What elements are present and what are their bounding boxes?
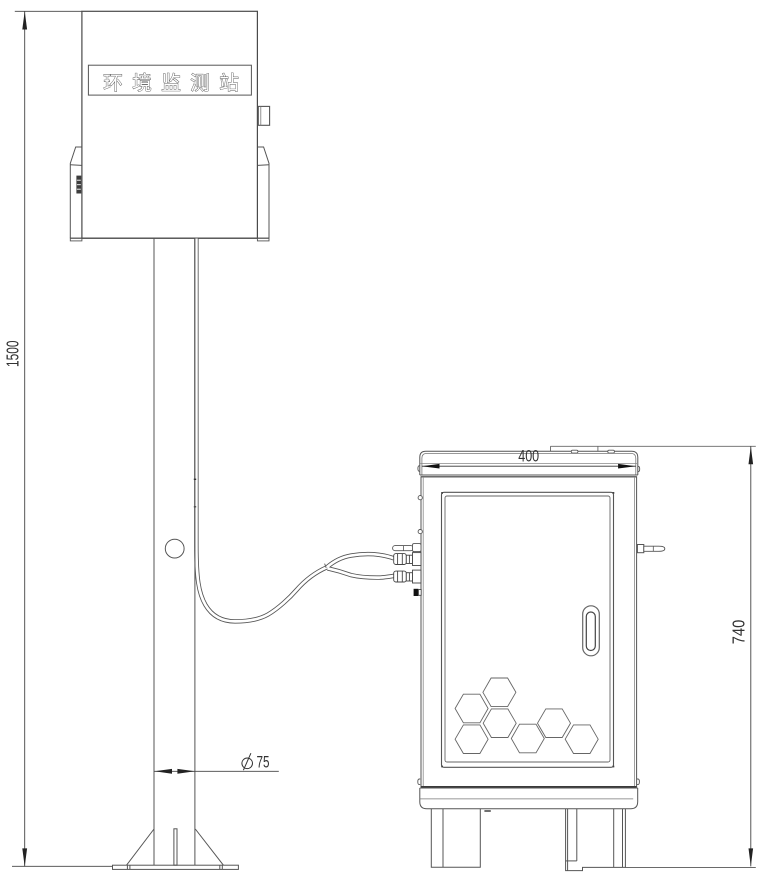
svg-text:1500: 1500 [3, 340, 23, 367]
svg-text:740: 740 [728, 620, 748, 645]
svg-text:环境监测站: 环境监测站 [103, 73, 248, 95]
svg-text:400: 400 [518, 446, 539, 465]
svg-text:75: 75 [257, 752, 270, 771]
